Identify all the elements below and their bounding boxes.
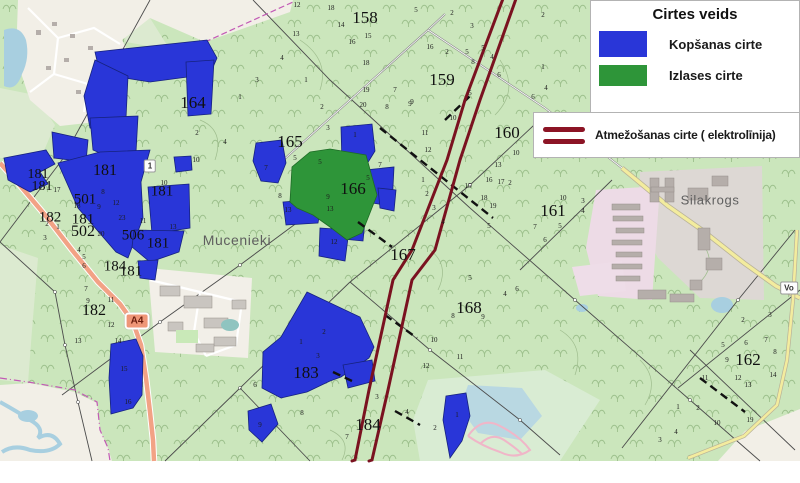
legend-box: Cirtes veids Kopšanas cirte Izlases cirt… [590, 0, 800, 113]
legend-label: Izlases cirte [669, 68, 743, 83]
legend-item-kopsanas: Kopšanas cirte [599, 31, 799, 57]
road-shield-a4: A4 [125, 313, 150, 330]
legend-label: Kopšanas cirte [669, 37, 762, 52]
green-swatch [599, 65, 647, 86]
legend-item-izlases: Izlases cirte [599, 65, 799, 86]
map-badge-right-edge: Vo [780, 282, 798, 295]
legend-box-powerline: Atmežošanas cirte ( elektrolīnija) [533, 112, 800, 158]
blue-swatch [599, 31, 647, 57]
legend-title: Cirtes veids [591, 6, 799, 23]
map-badge: 1 [144, 160, 156, 173]
double-line-swatch [534, 120, 595, 151]
forestry-map: 1218141316154181197208293111252316255486… [0, 0, 800, 483]
legend-label: Atmežošanas cirte ( elektrolīnija) [595, 128, 776, 142]
